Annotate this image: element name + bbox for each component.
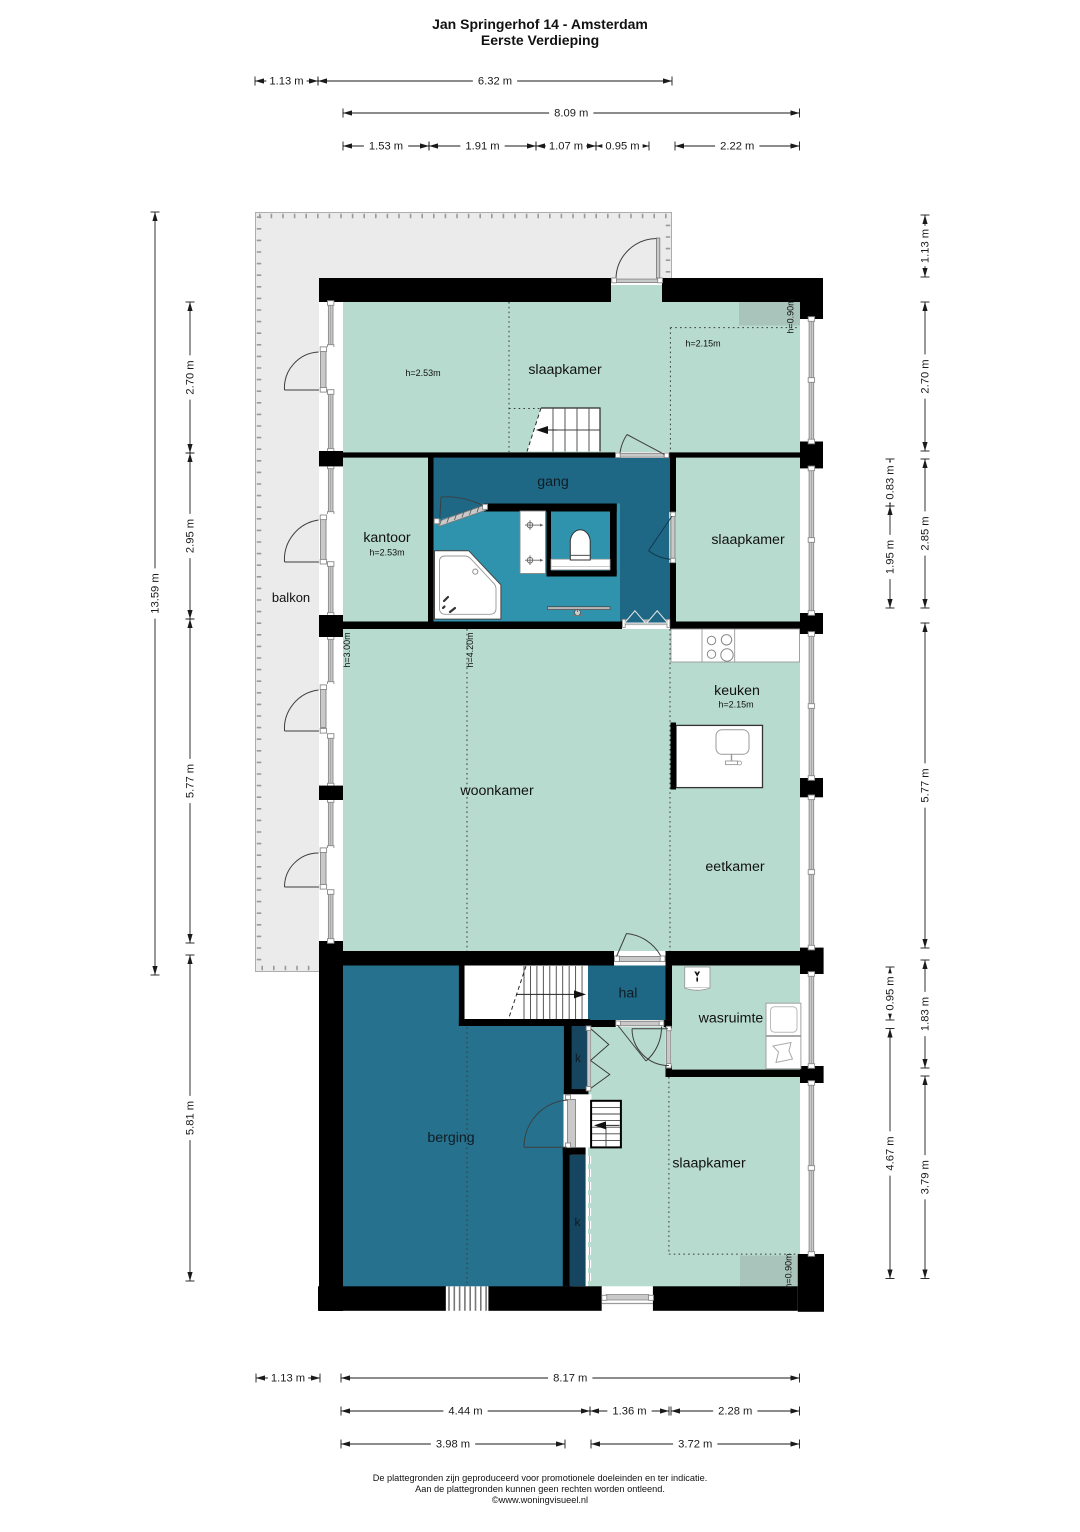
svg-text:2.70 m: 2.70 m	[920, 359, 932, 393]
svg-text:slaapkamer: slaapkamer	[672, 1156, 746, 1172]
svg-text:5.77 m: 5.77 m	[920, 768, 932, 802]
svg-text:1.13 m: 1.13 m	[271, 1373, 305, 1385]
svg-text:1.36 m: 1.36 m	[612, 1406, 646, 1418]
svg-text:Jan Springerhof 14 - Amsterdam: Jan Springerhof 14 - Amsterdam	[432, 16, 648, 32]
svg-text:3.98 m: 3.98 m	[436, 1439, 470, 1451]
svg-text:1.91 m: 1.91 m	[465, 141, 499, 153]
svg-text:h=2.53m: h=2.53m	[369, 548, 404, 558]
svg-text:eetkamer: eetkamer	[705, 859, 764, 875]
svg-text:berging: berging	[427, 1130, 474, 1146]
svg-text:©www.woningvisueel.nl: ©www.woningvisueel.nl	[492, 1495, 588, 1505]
svg-text:h=0.90m: h=0.90m	[786, 298, 796, 333]
svg-text:1.83 m: 1.83 m	[920, 997, 932, 1031]
svg-text:5.77 m: 5.77 m	[185, 764, 197, 798]
svg-text:1.53 m: 1.53 m	[369, 141, 403, 153]
svg-text:gang: gang	[537, 474, 569, 490]
svg-text:h=4.20m: h=4.20m	[465, 632, 475, 667]
svg-text:hal: hal	[619, 986, 638, 1002]
svg-text:Aan de plattegronden kunnen ge: Aan de plattegronden kunnen geen rechten…	[415, 1484, 665, 1494]
svg-text:keuken: keuken	[714, 683, 760, 699]
svg-text:h=2.15m: h=2.15m	[718, 700, 753, 710]
svg-text:5.81 m: 5.81 m	[185, 1101, 197, 1135]
svg-text:3.72 m: 3.72 m	[678, 1439, 712, 1451]
svg-text:h=2.15m: h=2.15m	[685, 339, 720, 349]
svg-text:8.17 m: 8.17 m	[553, 1373, 587, 1385]
svg-text:0.95 m: 0.95 m	[605, 141, 639, 153]
svg-text:h=3.00m: h=3.00m	[342, 632, 352, 667]
svg-text:k: k	[575, 1215, 582, 1229]
svg-text:balkon: balkon	[272, 590, 310, 605]
svg-text:0.83 m: 0.83 m	[885, 465, 897, 499]
svg-text:slaapkamer: slaapkamer	[711, 532, 785, 548]
svg-text:h=2.53m: h=2.53m	[405, 368, 440, 378]
svg-text:2.85 m: 2.85 m	[920, 516, 932, 550]
svg-text:2.95 m: 2.95 m	[185, 519, 197, 553]
svg-text:1.13 m: 1.13 m	[920, 229, 932, 263]
svg-text:1.13 m: 1.13 m	[269, 76, 303, 88]
svg-text:3.79 m: 3.79 m	[920, 1160, 932, 1194]
svg-text:h=0.90m: h=0.90m	[784, 1253, 794, 1288]
svg-text:13.59 m: 13.59 m	[150, 573, 162, 613]
svg-text:2.70 m: 2.70 m	[185, 360, 197, 394]
svg-text:wasruimte: wasruimte	[698, 1011, 764, 1027]
svg-text:Eerste Verdieping: Eerste Verdieping	[481, 32, 599, 48]
svg-text:1.95 m: 1.95 m	[885, 540, 897, 574]
svg-text:6.32 m: 6.32 m	[478, 76, 512, 88]
svg-text:4.67 m: 4.67 m	[885, 1136, 897, 1170]
svg-text:1.07 m: 1.07 m	[549, 141, 583, 153]
svg-text:4.44 m: 4.44 m	[448, 1406, 482, 1418]
svg-text:0.95 m: 0.95 m	[885, 976, 897, 1010]
svg-text:k: k	[575, 1051, 582, 1065]
svg-text:2.28 m: 2.28 m	[718, 1406, 752, 1418]
svg-text:kantoor: kantoor	[363, 530, 411, 546]
svg-text:8.09 m: 8.09 m	[554, 108, 588, 120]
svg-text:De plattegronden zijn geproduc: De plattegronden zijn geproduceerd voor …	[373, 1473, 708, 1483]
svg-text:2.22 m: 2.22 m	[720, 141, 754, 153]
svg-text:woonkamer: woonkamer	[459, 783, 534, 799]
svg-text:slaapkamer: slaapkamer	[528, 362, 602, 378]
